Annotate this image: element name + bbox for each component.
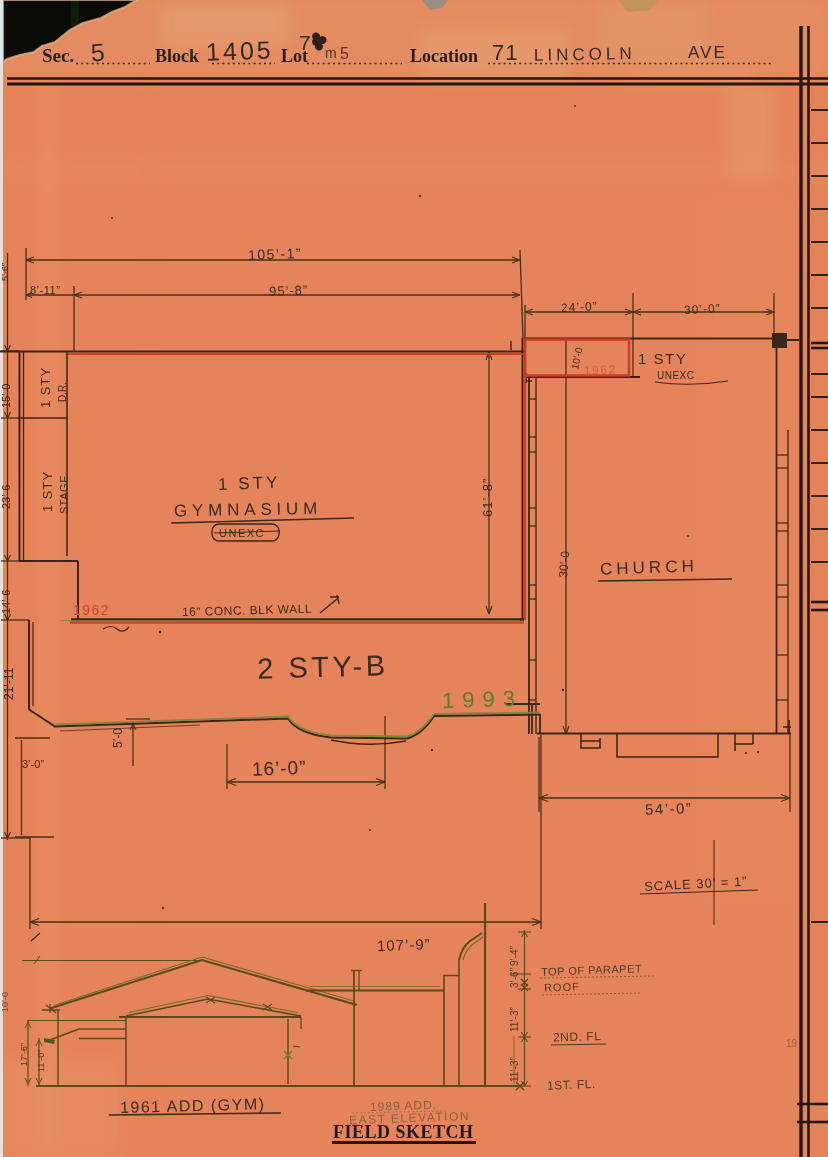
svg-text:2 STY-B: 2 STY-B (257, 649, 389, 684)
svg-text:2ND. FL: 2ND. FL (553, 1029, 602, 1045)
svg-text:15’-0: 15’-0 (0, 384, 12, 408)
svg-text:1 STY: 1 STY (40, 471, 55, 512)
svg-text:11’-3”: 11’-3” (509, 1057, 520, 1082)
svg-text:9’-4”: 9’-4” (509, 946, 520, 966)
svg-text:14’-6: 14’-6 (0, 590, 12, 614)
svg-text:STAGE: STAGE (58, 475, 70, 514)
svg-text:Location: Location (410, 46, 478, 66)
svg-text:5’-6”: 5’-6” (0, 263, 10, 281)
svg-text:7: 7 (299, 31, 311, 54)
svg-text:LINCOLN: LINCOLN (534, 44, 636, 65)
svg-text:Block: Block (155, 46, 199, 66)
svg-text:5’-0: 5’-0 (111, 728, 125, 748)
svg-text:11’-3”: 11’-3” (509, 1007, 520, 1032)
svg-text:5: 5 (90, 38, 105, 67)
svg-text:1ST. FL.: 1ST. FL. (547, 1077, 596, 1093)
svg-text:107’-9”: 107’-9” (377, 935, 431, 954)
svg-text:61’-8”: 61’-8” (480, 478, 495, 517)
svg-text:GYMNASIUM: GYMNASIUM (174, 499, 322, 521)
svg-text:D.R.: D.R. (57, 382, 68, 402)
svg-text:ROOF: ROOF (544, 980, 580, 993)
svg-text:24’-0”: 24’-0” (561, 299, 598, 315)
svg-text:19: 19 (786, 1038, 798, 1049)
svg-text:FIELD SKETCH: FIELD SKETCH (333, 1122, 474, 1142)
svg-text:30’-0”: 30’-0” (684, 301, 721, 317)
svg-text:CHURCH: CHURCH (600, 556, 698, 578)
svg-text:1962: 1962 (73, 602, 110, 618)
svg-text:54’-0”: 54’-0” (645, 799, 693, 818)
svg-text:23’-6: 23’-6 (0, 485, 12, 509)
svg-text:21’-11: 21’-11 (2, 667, 16, 700)
svg-text:5: 5 (340, 45, 349, 62)
svg-text:71: 71 (492, 40, 518, 65)
svg-text:10’-0: 10’-0 (0, 992, 10, 1012)
svg-text:30’-0: 30’-0 (556, 550, 572, 578)
svg-text:UNEXC: UNEXC (657, 370, 695, 381)
svg-text:3’-0”: 3’-0” (22, 758, 44, 770)
svg-text:16’-0”: 16’-0” (252, 757, 307, 780)
svg-text:105’-1”: 105’-1” (248, 245, 303, 263)
svg-text:1 STY: 1 STY (218, 473, 281, 494)
svg-text:Sec.: Sec. (42, 45, 74, 66)
svg-text:11’-0”: 11’-0” (36, 1050, 46, 1072)
svg-text:1 STY: 1 STY (638, 350, 687, 367)
svg-text:1 STY: 1 STY (38, 367, 53, 408)
svg-text:1993: 1993 (442, 686, 524, 714)
svg-text:1962: 1962 (584, 362, 617, 377)
svg-text:3’-6”: 3’-6” (509, 968, 520, 988)
svg-text:8’-11”: 8’-11” (30, 284, 60, 296)
svg-text:95’-8”: 95’-8” (269, 282, 309, 298)
svg-text:17’-6”: 17’-6” (19, 1043, 29, 1066)
svg-text:m: m (325, 45, 337, 61)
svg-text:AVE: AVE (688, 43, 727, 62)
svg-text:1405: 1405 (206, 35, 275, 65)
